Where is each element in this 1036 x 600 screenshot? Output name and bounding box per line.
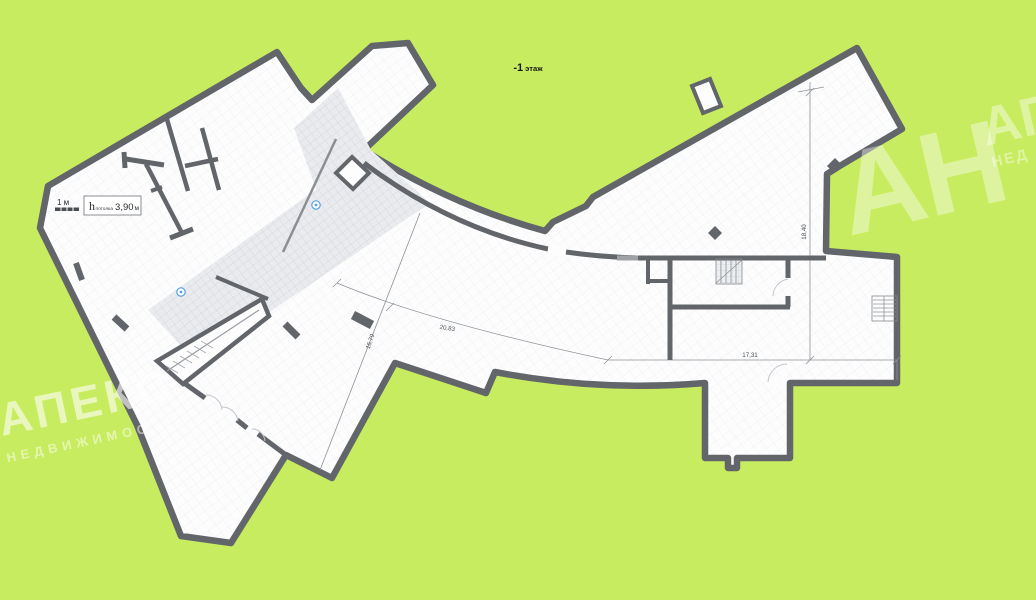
ceiling-height-legend: hпотолка3,90м xyxy=(84,196,141,215)
ceiling-symbol: h xyxy=(89,199,95,213)
dimension-label-18-40: 18,40 xyxy=(801,224,808,240)
floor-plan-page: 18,40 17,31 20,83 16,79 1 м hпотолка3,90… xyxy=(0,0,1036,600)
ceiling-subscript: потолка xyxy=(96,207,114,212)
dimension-label-17-31: 17,31 xyxy=(742,352,758,359)
photo-marker-1[interactable] xyxy=(312,201,320,209)
scale-bar xyxy=(55,208,79,212)
ceiling-value: 3,90 xyxy=(115,202,134,213)
floor-word: этаж xyxy=(525,64,543,73)
ceiling-unit: м xyxy=(135,205,140,212)
photo-marker-2[interactable] xyxy=(177,288,185,296)
scale-label: 1 м xyxy=(57,198,69,207)
floor-plan-svg: 18,40 17,31 20,83 16,79 1 м hпотолка3,90… xyxy=(0,0,1036,600)
floor-number: -1 xyxy=(513,62,523,74)
page-title: -1этаж xyxy=(513,62,543,74)
